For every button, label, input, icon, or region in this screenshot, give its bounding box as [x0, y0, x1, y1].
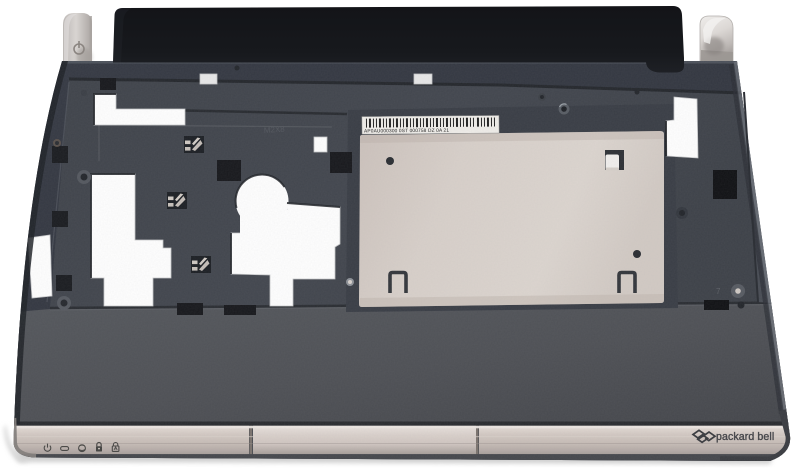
svg-text:packard bell: packard bell: [716, 431, 774, 443]
